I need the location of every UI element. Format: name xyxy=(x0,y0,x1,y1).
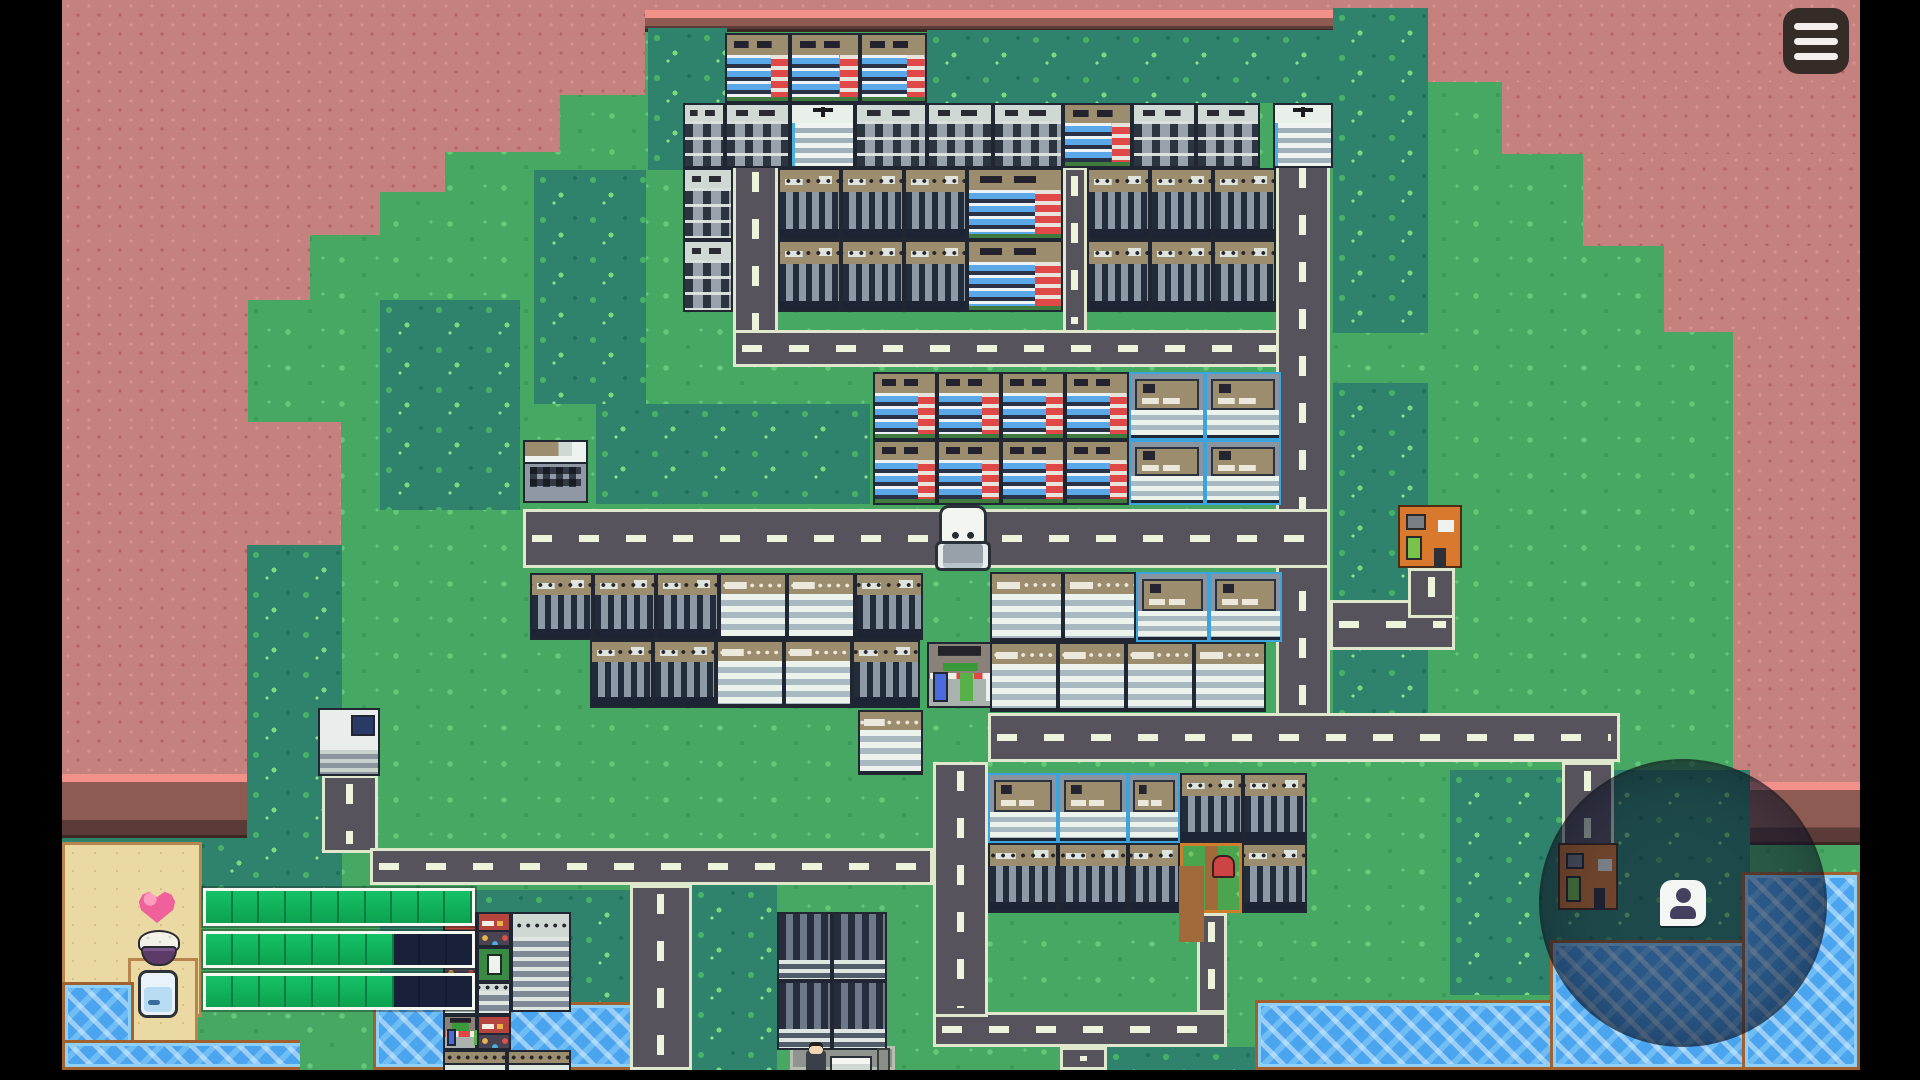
player-location-scope[interactable] xyxy=(1542,762,1824,1044)
road-main-lower xyxy=(988,713,1620,762)
corner-store xyxy=(927,642,993,708)
bld-grayshop xyxy=(511,912,571,1012)
bld-office xyxy=(787,573,855,640)
bld-ware xyxy=(1180,773,1243,843)
ter-tree xyxy=(1333,8,1428,333)
health-bar xyxy=(203,888,475,926)
bld-ware xyxy=(904,168,967,240)
bld-dark xyxy=(832,912,887,981)
bld-ware xyxy=(530,573,593,640)
bld-tower xyxy=(683,168,733,240)
office-road-end xyxy=(523,440,588,503)
bld-ware xyxy=(1150,168,1213,240)
water-segment xyxy=(447,976,472,1007)
bld-ware xyxy=(1058,843,1128,913)
bld-ware xyxy=(590,640,653,708)
hamburger-menu-icon xyxy=(1794,38,1838,45)
bld-office xyxy=(784,640,852,708)
bld-office xyxy=(858,710,923,775)
bld-tan xyxy=(443,1050,507,1070)
road-south-connector xyxy=(933,1012,1227,1047)
bld-tower xyxy=(855,103,927,168)
bld-shopawning xyxy=(443,1015,477,1050)
bld-ware xyxy=(904,240,967,312)
road-top-cluster-south xyxy=(733,330,1330,367)
bld-ware xyxy=(1128,843,1180,913)
bld-office xyxy=(990,642,1058,712)
food-segment xyxy=(286,934,313,965)
health-segment xyxy=(312,891,339,923)
hamburger-menu-icon xyxy=(1794,23,1838,30)
bld-ware xyxy=(1213,240,1276,312)
food-segment xyxy=(313,934,340,965)
bld-apt xyxy=(725,33,790,103)
health-segment xyxy=(206,891,233,923)
bld-apt xyxy=(873,440,937,505)
bld-office xyxy=(716,640,784,708)
bld-office2 xyxy=(1129,440,1205,505)
water-segment xyxy=(260,976,287,1007)
food-segment xyxy=(447,934,472,965)
bld-dark xyxy=(777,981,832,1050)
game-screen xyxy=(0,0,1920,1080)
bld-ware xyxy=(988,843,1058,913)
bld-ware xyxy=(1213,168,1276,240)
cliff-northwest xyxy=(62,235,310,300)
water-segment xyxy=(206,976,233,1007)
bld-tower xyxy=(927,103,993,168)
bld-office xyxy=(1126,642,1194,712)
bld-apt xyxy=(1065,372,1129,440)
ter-tree xyxy=(1107,1047,1255,1070)
ter-tree xyxy=(596,404,870,504)
bld-ware xyxy=(1087,168,1150,240)
food-bar xyxy=(203,931,475,968)
sea-southwest xyxy=(62,1040,308,1070)
bld-whitetower xyxy=(790,103,855,168)
ter-tree xyxy=(534,170,646,404)
bld-tower xyxy=(725,103,790,168)
cliff-west-column xyxy=(62,300,248,422)
water-segment xyxy=(394,976,421,1007)
community-garden xyxy=(1180,843,1242,913)
bld-tower xyxy=(683,240,733,312)
menu-button[interactable] xyxy=(1783,8,1849,74)
bld-ware xyxy=(855,573,923,640)
bld-apt xyxy=(1001,372,1065,440)
health-segment xyxy=(233,891,260,923)
road-southwest xyxy=(370,848,933,885)
bld-ware xyxy=(593,573,656,640)
cliff-northwest xyxy=(62,192,380,235)
cliff-northeast xyxy=(1664,246,1860,332)
bld-tower xyxy=(683,103,725,168)
food-segment xyxy=(206,934,233,965)
water-segment xyxy=(367,976,394,1007)
bld-ware xyxy=(841,168,904,240)
letterbox-bottom xyxy=(0,1070,1920,1080)
bld-apt xyxy=(967,240,1063,312)
bld-ware xyxy=(1150,240,1213,312)
bld-ware xyxy=(778,168,841,240)
bld-office2 xyxy=(1058,773,1128,843)
bld-greenvend xyxy=(477,947,511,982)
bld-ware xyxy=(1087,240,1150,312)
cliff-northeast xyxy=(1583,154,1860,246)
health-segment xyxy=(392,891,419,923)
water-segment xyxy=(286,976,313,1007)
bld-office2 xyxy=(1129,372,1205,440)
bld-apt xyxy=(860,33,927,103)
bld-ware xyxy=(1242,843,1307,913)
bld-ware xyxy=(656,573,719,640)
bld-tower xyxy=(993,103,1063,168)
bld-ware xyxy=(841,240,904,312)
factory-unit xyxy=(318,708,380,776)
market-stall xyxy=(830,1056,872,1070)
cliff-west-foot xyxy=(62,774,247,838)
ter-grass-patch xyxy=(300,1022,382,1070)
food-segment xyxy=(420,934,447,965)
road-top-cluster-alley xyxy=(1063,167,1087,333)
bld-tower xyxy=(1196,103,1260,168)
bld-redshop xyxy=(477,1015,511,1050)
bld-office xyxy=(1063,572,1136,642)
bld-office2 xyxy=(1205,440,1281,505)
road-garden-stub xyxy=(1197,913,1227,1013)
bld-ware xyxy=(778,240,841,312)
ter-tree xyxy=(692,885,777,1070)
cliff-northwest xyxy=(62,152,445,192)
bld-apt xyxy=(790,33,860,103)
road-south-exit-west xyxy=(630,885,692,1070)
bld-apt xyxy=(873,372,937,440)
bld-office2 xyxy=(1136,572,1209,642)
bld-apt xyxy=(1001,440,1065,505)
bld-office xyxy=(1194,642,1266,712)
road-factory-stub xyxy=(322,775,378,853)
bld-dark xyxy=(832,981,887,1050)
bld-apt xyxy=(937,440,1001,505)
cliff-west-column xyxy=(62,574,247,774)
water-segment xyxy=(313,976,340,1007)
food-segment xyxy=(394,934,421,965)
food-segment xyxy=(233,934,260,965)
ter-tree xyxy=(927,30,1333,103)
bld-apt xyxy=(937,372,1001,440)
road-south-exit-mid xyxy=(1060,1047,1107,1070)
health-segment xyxy=(366,891,393,923)
health-segment xyxy=(339,891,366,923)
bld-whitetower xyxy=(1273,103,1333,168)
cliff-northwest xyxy=(62,0,645,95)
villager xyxy=(806,1050,826,1070)
bld-office2 xyxy=(1205,372,1281,440)
bld-tower xyxy=(1132,103,1196,168)
cliff-east-column xyxy=(1733,332,1860,782)
health-segment xyxy=(445,891,472,923)
cliff-northeast xyxy=(1502,82,1860,154)
hardware-store xyxy=(1398,505,1462,568)
health-segment xyxy=(259,891,286,923)
road-hardware-spur xyxy=(1408,568,1455,618)
bld-office2 xyxy=(1128,773,1180,843)
bld-office xyxy=(990,572,1063,642)
road-main-middle xyxy=(523,509,1330,568)
bld-apt xyxy=(1065,440,1129,505)
bld-office xyxy=(1058,642,1126,712)
bld-tan xyxy=(507,1050,571,1070)
bld-apt xyxy=(1063,103,1132,168)
water-segment xyxy=(233,976,260,1007)
bld-dark xyxy=(777,912,832,981)
bld-office xyxy=(719,573,787,640)
road-mid-south xyxy=(933,762,988,1017)
road-main-vertical xyxy=(1276,159,1330,725)
rice-bowl-icon xyxy=(138,928,180,968)
bld-grayshop xyxy=(477,982,511,1015)
food-segment xyxy=(367,934,394,965)
bld-apt xyxy=(967,168,1063,240)
bld-redshop xyxy=(477,912,511,947)
hamburger-menu-icon xyxy=(1794,53,1838,60)
street-post xyxy=(877,1048,890,1070)
food-segment xyxy=(260,934,287,965)
water-bar xyxy=(203,973,475,1010)
player-location-pin-icon xyxy=(1660,880,1706,926)
letterbox-left xyxy=(0,0,62,1080)
bld-office2 xyxy=(988,773,1058,843)
water-glass-icon xyxy=(138,970,178,1018)
food-segment xyxy=(340,934,367,965)
cliff-northwest xyxy=(62,95,560,152)
letterbox-right xyxy=(1860,0,1920,1080)
bld-office2 xyxy=(1209,572,1282,642)
bld-ware xyxy=(653,640,716,708)
health-segment xyxy=(286,891,313,923)
water-segment xyxy=(340,976,367,1007)
player-character xyxy=(935,505,987,573)
bld-ware xyxy=(1243,773,1307,843)
water-segment xyxy=(420,976,447,1007)
health-segment xyxy=(419,891,446,923)
bld-ware xyxy=(852,640,920,708)
ter-tree xyxy=(380,300,520,510)
